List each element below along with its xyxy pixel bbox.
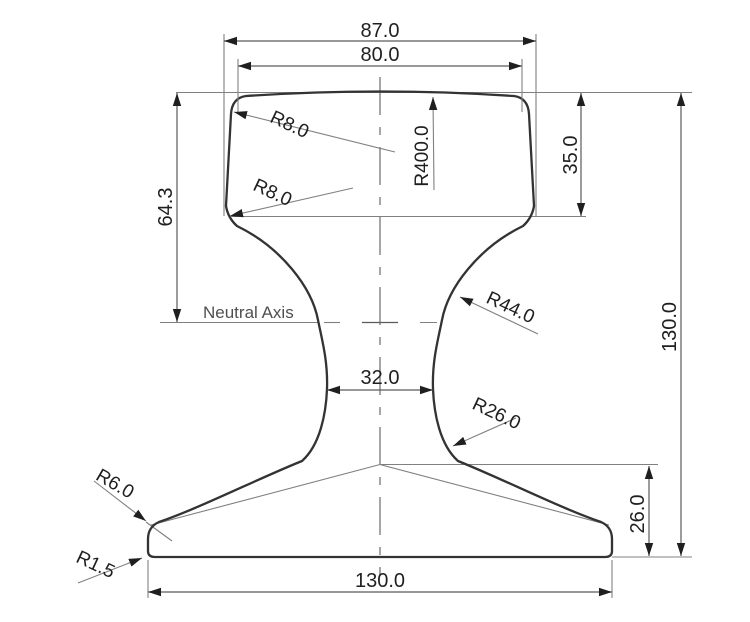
radius-label-r400: R400.0: [412, 125, 433, 186]
dim-label-32: 32.0: [361, 367, 400, 389]
dim-label-64-3: 64.3: [155, 188, 177, 227]
dim-label-26: 26.0: [627, 495, 649, 534]
dim-label-35: 35.0: [560, 136, 582, 175]
radius-label-r8-bottom: R8.0: [250, 175, 295, 211]
dim-top-to-neutral-axis: 64.3: [155, 93, 177, 322]
radius-foot-top-corner: R6.0: [92, 465, 146, 521]
rail-section-drawing: 87.0 80.0 64.3 35.0 130.0 26.0 32.0 130.…: [0, 0, 750, 622]
radius-label-r44: R44.0: [483, 288, 538, 328]
foot-construction-lines: [146, 465, 658, 542]
dim-label-130-right: 130.0: [659, 302, 681, 352]
radius-label-r8-top: R8.0: [267, 107, 312, 143]
dim-label-87: 87.0: [361, 20, 400, 42]
radius-head-bottom-corner: R8.0: [230, 175, 353, 216]
dim-foot-width: 130.0: [148, 560, 612, 598]
radius-web-upper-fillet: R44.0: [460, 288, 538, 334]
dim-head-height: 35.0: [560, 93, 582, 216]
radius-head-top-corner: R8.0: [234, 107, 395, 152]
drawing-svg: 87.0 80.0 64.3 35.0 130.0 26.0 32.0 130.…: [0, 0, 750, 622]
radius-foot-bottom-corner: R1.5: [73, 547, 142, 583]
radius-label-r26: R26.0: [469, 394, 524, 434]
neutral-axis-label: Neutral Axis: [203, 303, 294, 322]
dim-label-130-bottom: 130.0: [355, 570, 405, 592]
radius-label-r1-5: R1.5: [73, 547, 118, 583]
radius-head-crown: R400.0: [412, 97, 434, 190]
dim-web-thickness: 32.0: [327, 367, 433, 390]
dim-overall-height: 130.0: [659, 93, 681, 556]
dim-label-80: 80.0: [361, 44, 400, 66]
dim-foot-edge-height: 26.0: [627, 466, 649, 556]
radius-web-lower-fillet: R26.0: [453, 394, 524, 446]
